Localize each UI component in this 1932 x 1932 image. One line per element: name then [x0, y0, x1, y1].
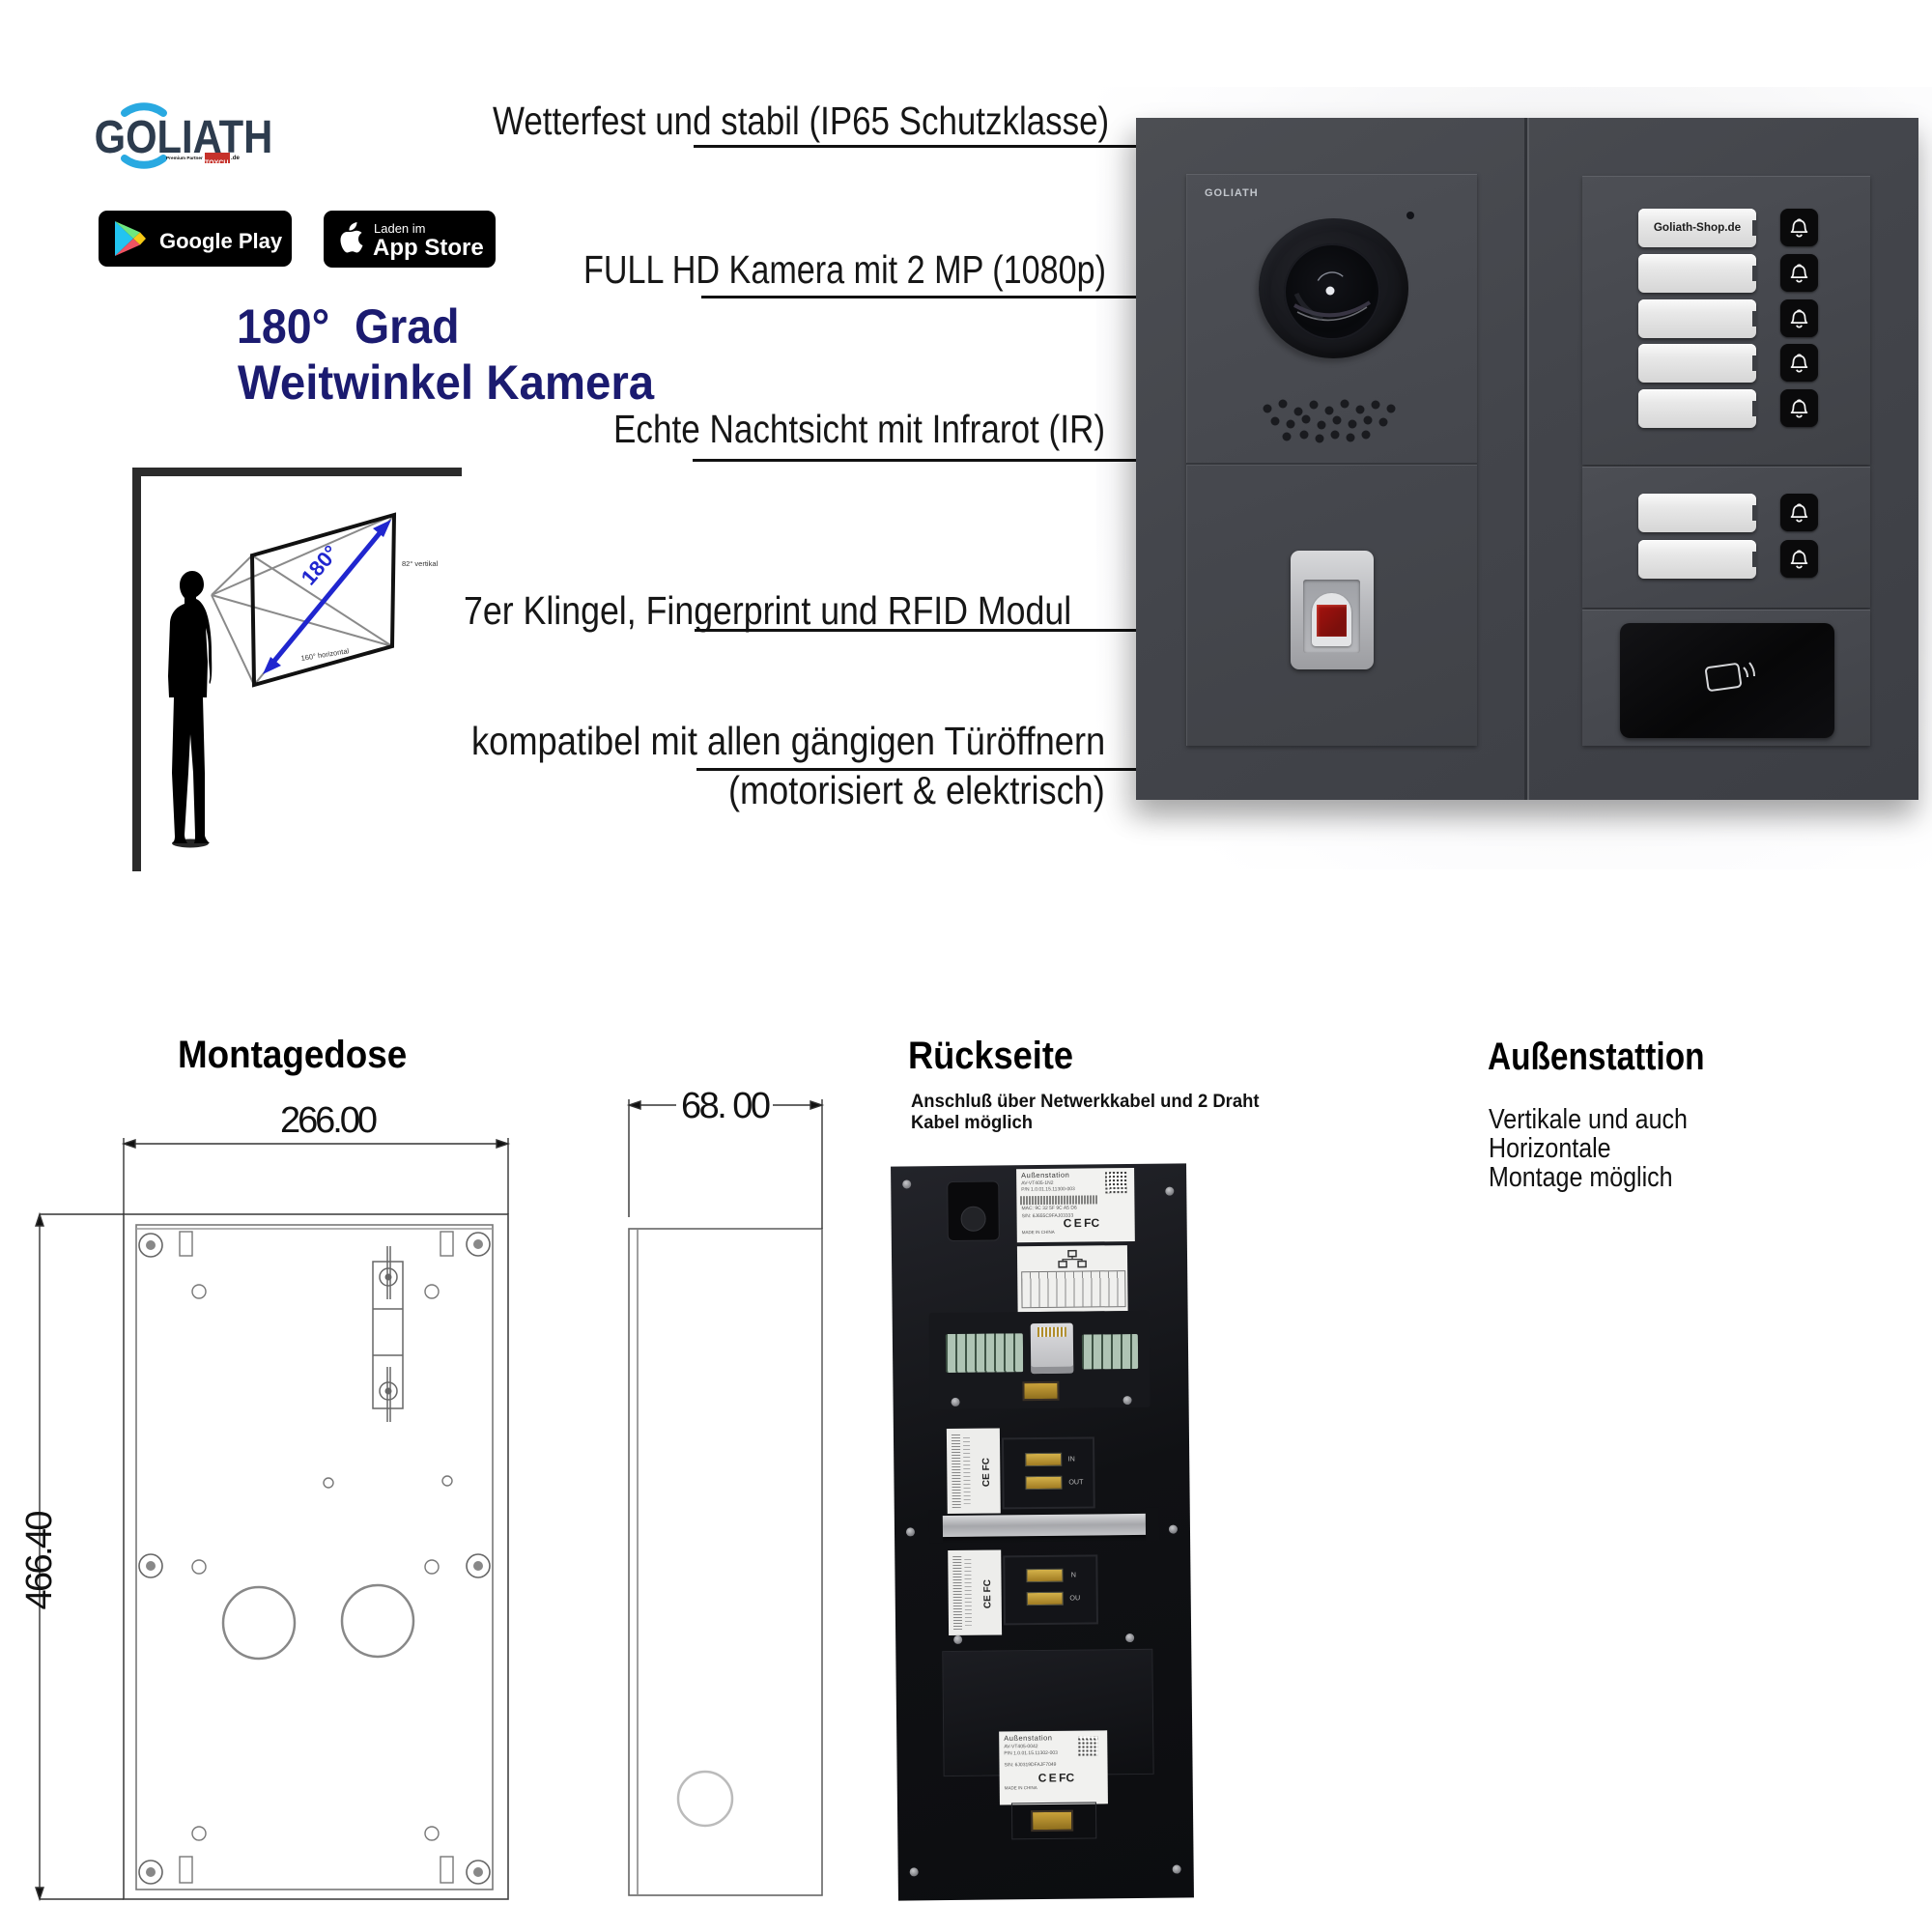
- svg-text:466.40: 466.40: [19, 1511, 60, 1610]
- svg-text:68. 00: 68. 00: [681, 1086, 771, 1126]
- svg-text:82° vertikal: 82° vertikal: [402, 559, 439, 568]
- svg-text:266.00: 266.00: [280, 1100, 378, 1141]
